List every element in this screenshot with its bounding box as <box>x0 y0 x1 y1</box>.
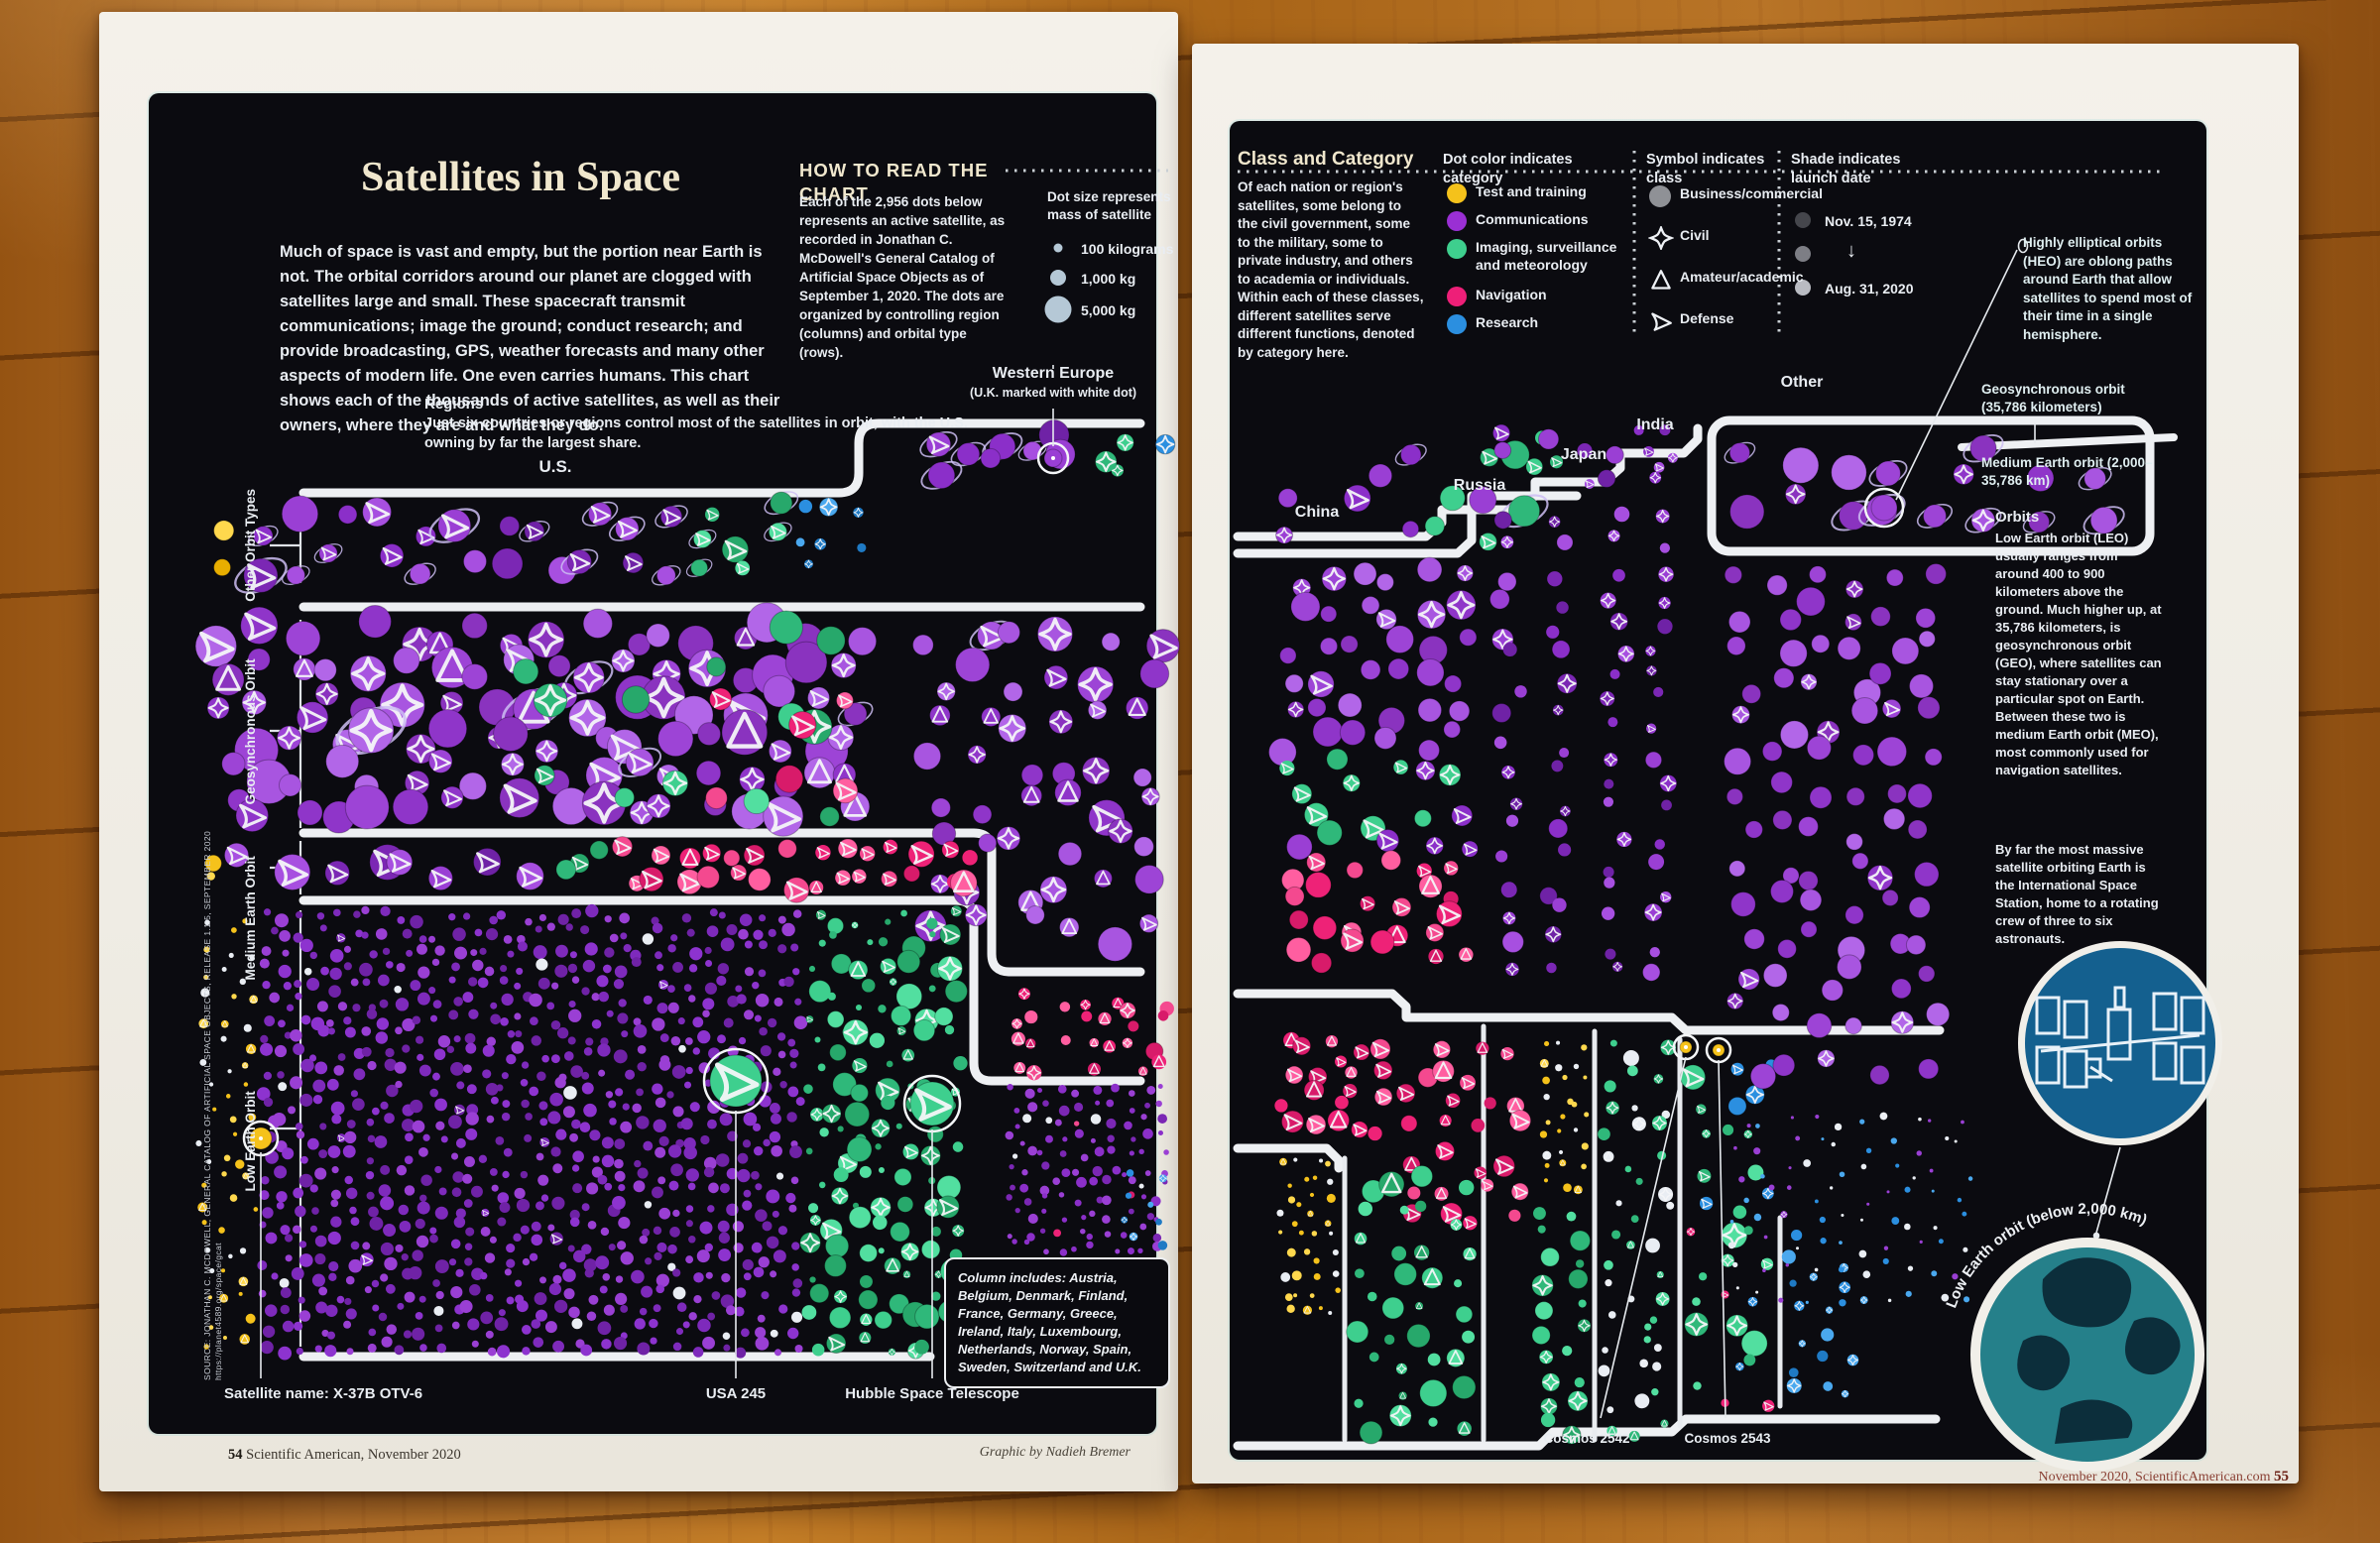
source-credit: SOURCE: JONATHAN C. MCDOWELL, GENERAL CA… <box>202 825 224 1380</box>
orbits-note-p2: By far the most massive satellite orbiti… <box>1995 841 2164 948</box>
legend-item-business: Business/commercial <box>1648 184 1807 208</box>
shade-oldest-date: Nov. 15, 1974 <box>1825 212 1954 230</box>
region-label-china: China <box>1257 502 1376 523</box>
region-label-japan: Japan <box>1524 444 1643 465</box>
right-footer-text: November 2020, ScientificAmerican.com <box>2038 1470 2270 1484</box>
column-includes-note: Column includes: Austria, Belgium, Denma… <box>944 1257 1170 1388</box>
meo-orbit-label: Medium Earth orbit (2,000–35,786 km) <box>1981 454 2172 490</box>
legend-item-test-training: Test and training <box>1446 182 1629 204</box>
shade-heading: Shade indicates launch date <box>1791 151 1940 188</box>
research-dot-icon <box>1446 313 1470 335</box>
business-circle-icon <box>1648 184 1674 208</box>
mass-label-100kg: 100 kilograms <box>1081 240 1190 258</box>
left-footer-text: Scientific American, November 2020 <box>246 1447 461 1463</box>
page-title: Satellites in Space <box>327 151 714 205</box>
photo-of-magazine-spread: Low Earth orbit (below 2,000 km) Satelli… <box>0 0 2380 1543</box>
regions-heading: Regions <box>424 395 483 415</box>
column-label-western-europe-sub: (U.K. marked with white dot) <box>942 385 1164 402</box>
orbits-note-heading: Orbits <box>1995 508 2039 528</box>
orbit-row-label-meo: Medium Earth Orbit <box>242 819 260 1017</box>
shade-arrow-icon: ↓ <box>1846 238 1856 264</box>
legend-item-defense: Defense <box>1648 309 1807 333</box>
symbol-class-heading: Symbol indicates class <box>1646 151 1795 188</box>
class-category-body: Of each nation or region's satellites, s… <box>1238 178 1424 362</box>
communications-dot-icon <box>1446 210 1470 232</box>
annotation-usa245: USA 245 <box>666 1384 805 1404</box>
navigation-dot-icon <box>1446 286 1470 307</box>
legend-item-communications: Communications <box>1446 210 1629 232</box>
right-footer: November 2020, ScientificAmerican.com 55 <box>1944 1468 2289 1487</box>
geo-orbit-label: Geosynchronous orbit (35,786 kilometers) <box>1981 381 2172 416</box>
legend-item-navigation: Navigation <box>1446 286 1629 307</box>
orbit-row-label-other: Other Orbit Types <box>242 446 260 645</box>
annotation-satellite-name: Satellite name: X-37B OTV-6 <box>224 1384 422 1404</box>
shade-newest-date: Aug. 31, 2020 <box>1825 280 1954 297</box>
annotation-cosmos-2542: Cosmos 2542 <box>1527 1430 1646 1448</box>
graphic-credit: Graphic by Nadieh Bremer <box>932 1444 1130 1462</box>
left-footer: 54 Scientific American, November 2020 <box>228 1446 461 1465</box>
region-label-russia: Russia <box>1420 475 1539 496</box>
class-category-heading: Class and Category <box>1238 147 1413 172</box>
imaging-dot-icon <box>1446 238 1470 260</box>
region-label-india: India <box>1596 415 1715 435</box>
orbit-row-label-geo: Geosynchronous Orbit <box>242 633 260 831</box>
legend-item-amateur: Amateur/academic <box>1648 268 1807 292</box>
regions-body: Just six countries or regions control mo… <box>424 414 980 453</box>
orbits-note-p1: Low Earth orbit (LEO) usually ranges fro… <box>1995 530 2164 779</box>
dot-size-heading: Dot size represents mass of satellite <box>1047 188 1180 224</box>
orbit-row-label-leo: Low Earth Orbit <box>242 1042 260 1241</box>
mass-label-1000kg: 1,000 kg <box>1081 270 1190 288</box>
column-label-western-europe: Western Europe <box>942 363 1164 384</box>
heo-note: Highly elliptical orbits (HEO) are oblon… <box>2023 234 2198 344</box>
left-page-number: 54 <box>228 1447 243 1463</box>
legend-item-research: Research <box>1446 313 1629 335</box>
defense-curved-triangle-icon <box>1648 309 1674 333</box>
amateur-triangle-icon <box>1648 268 1674 292</box>
right-page-number: 55 <box>2274 1469 2289 1484</box>
legend-item-civil: Civil <box>1648 226 1807 250</box>
civil-star-icon <box>1648 226 1674 250</box>
annotation-cosmos-2543: Cosmos 2543 <box>1668 1430 1787 1448</box>
region-label-other: Other <box>1742 372 1861 393</box>
legend-item-imaging: Imaging, surveillance and meteorology <box>1446 238 1629 275</box>
column-label-us: U.S. <box>426 456 684 478</box>
how-to-read-body: Each of the 2,956 dots below represents … <box>799 192 1006 362</box>
test-training-dot-icon <box>1446 182 1470 204</box>
mass-label-5000kg: 5,000 kg <box>1081 301 1190 319</box>
intro-paragraph: Much of space is vast and empty, but the… <box>280 240 780 438</box>
